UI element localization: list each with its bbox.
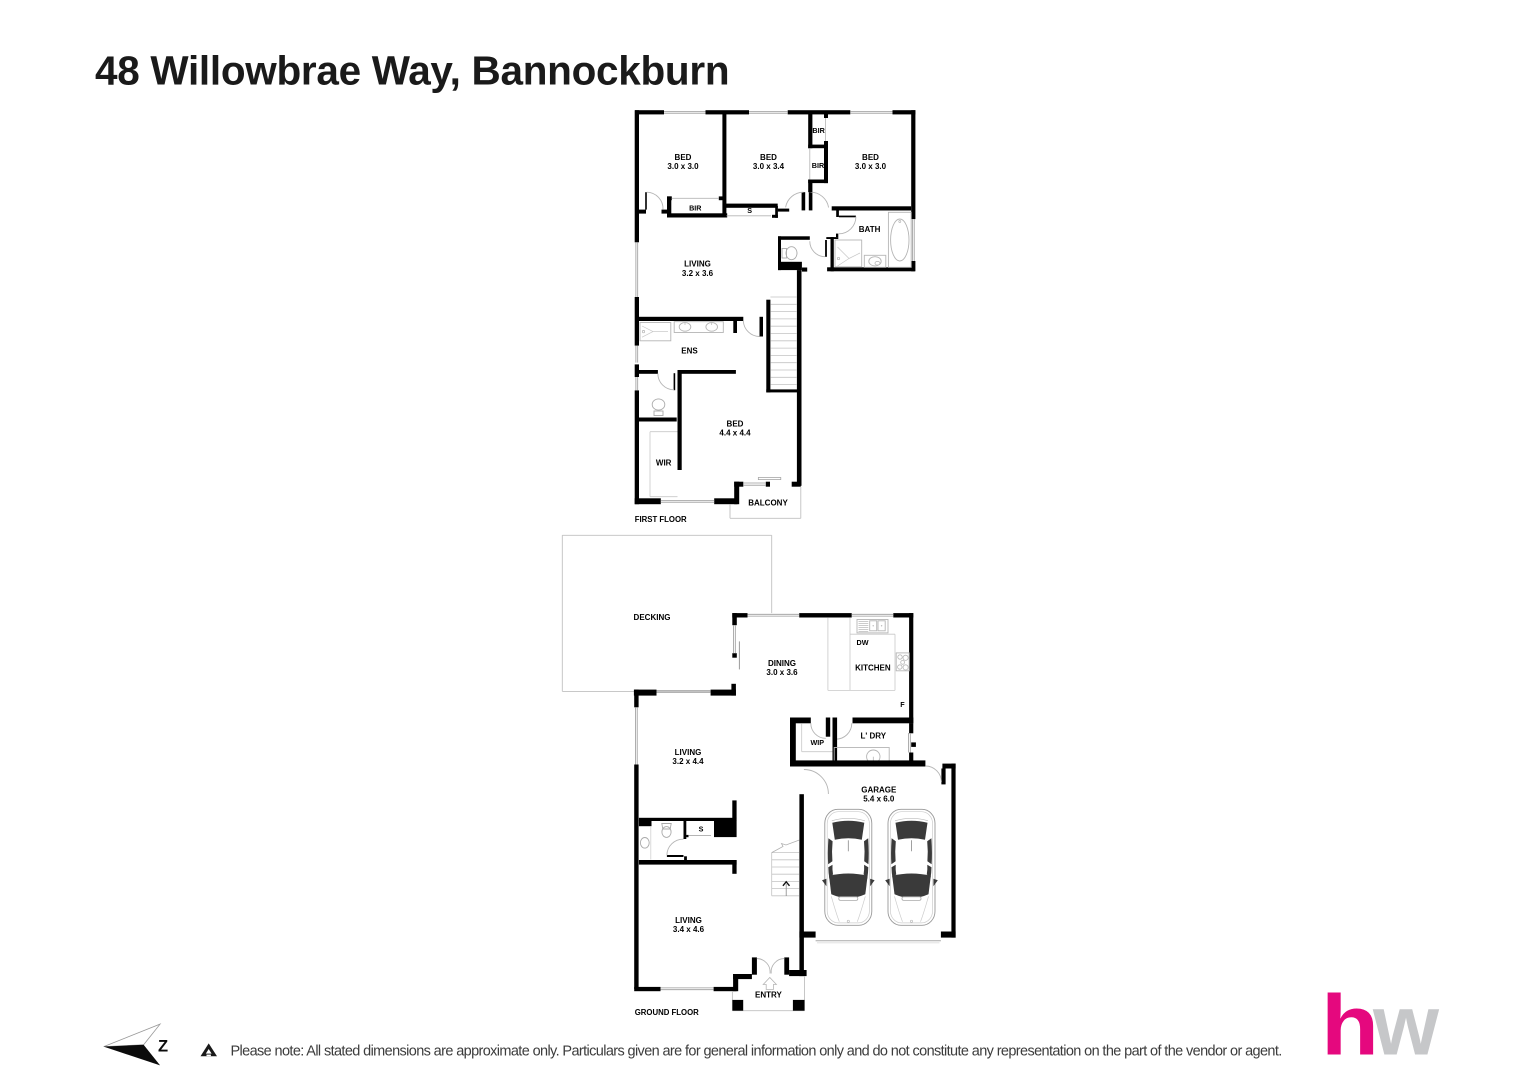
svg-text:GARAGE: GARAGE [861, 785, 897, 794]
svg-text:3.2 x 4.4: 3.2 x 4.4 [672, 757, 704, 766]
svg-text:DW: DW [857, 638, 869, 647]
svg-text:4.4 x 4.4: 4.4 x 4.4 [719, 429, 751, 438]
svg-text:LIVING: LIVING [675, 916, 702, 925]
svg-text:FIRST FLOOR: FIRST FLOOR [635, 515, 687, 524]
svg-text:3.0 x 3.0: 3.0 x 3.0 [667, 162, 699, 171]
svg-text:WIP: WIP [811, 738, 825, 747]
svg-text:3.2 x 3.6: 3.2 x 3.6 [682, 269, 714, 278]
svg-text:DINING: DINING [768, 659, 796, 668]
svg-text:BED: BED [862, 153, 879, 162]
svg-text:BED: BED [727, 419, 744, 428]
svg-text:BED: BED [760, 153, 777, 162]
svg-text:BALCONY: BALCONY [748, 498, 788, 507]
svg-text:Z: Z [158, 1038, 168, 1056]
svg-text:BIR: BIR [689, 204, 702, 213]
svg-text:S: S [699, 825, 704, 834]
svg-text:3.0 x 3.0: 3.0 x 3.0 [855, 162, 887, 171]
svg-text:ENS: ENS [681, 346, 698, 355]
svg-text:LIVING: LIVING [684, 260, 711, 269]
svg-text:3.0 x 3.6: 3.0 x 3.6 [766, 668, 798, 677]
svg-text:3.4 x 4.6: 3.4 x 4.6 [673, 925, 705, 934]
svg-text:BED: BED [675, 153, 692, 162]
svg-text:5.4 x 6.0: 5.4 x 6.0 [863, 795, 895, 804]
svg-text:48 Willowbrae Way, Bannockburn: 48 Willowbrae Way, Bannockburn [95, 48, 729, 94]
svg-text:GROUND FLOOR: GROUND FLOOR [635, 1008, 699, 1017]
svg-text:h: h [1321, 979, 1379, 1074]
svg-text:BIR: BIR [812, 161, 825, 170]
svg-text:KITCHEN: KITCHEN [855, 664, 891, 673]
svg-text:S: S [747, 206, 752, 215]
svg-text:WIR: WIR [656, 458, 672, 467]
svg-text:DECKING: DECKING [634, 613, 671, 622]
svg-text:w: w [1372, 979, 1440, 1074]
svg-text:F: F [900, 700, 905, 709]
svg-text:ENTRY: ENTRY [755, 990, 782, 999]
svg-text:Please note: All stated dimens: Please note: All stated dimensions are a… [231, 1044, 1282, 1060]
svg-text:BIR: BIR [812, 126, 825, 135]
svg-text:LIVING: LIVING [675, 748, 702, 757]
svg-text:L' DRY: L' DRY [860, 732, 886, 741]
svg-text:3.0 x 3.4: 3.0 x 3.4 [753, 162, 785, 171]
svg-text:BATH: BATH [859, 225, 881, 234]
